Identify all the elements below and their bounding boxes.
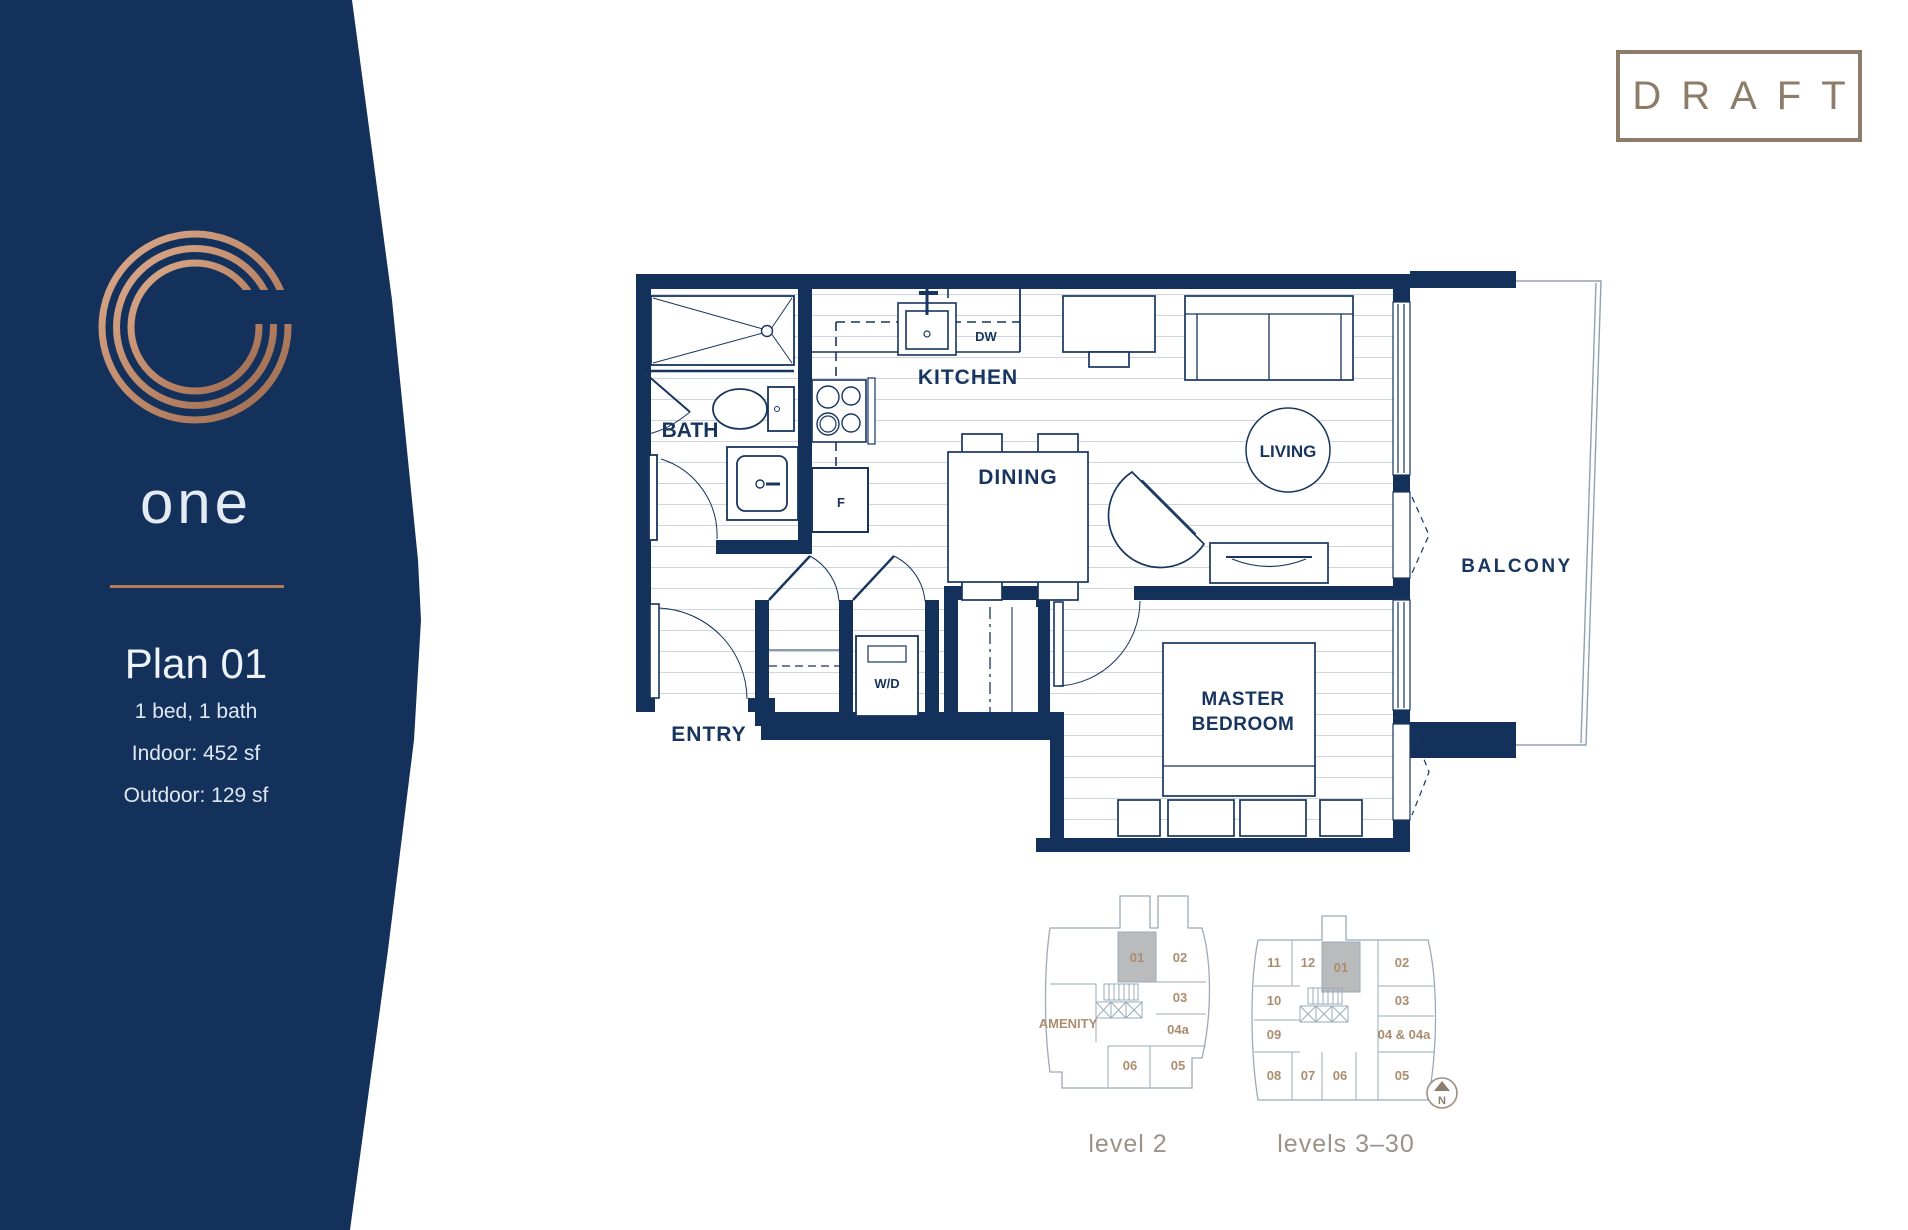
kp3-unit-08: 08 (1267, 1068, 1281, 1083)
kp2-unit-01: 01 (1130, 950, 1144, 965)
room-label-living: LIVING (1260, 442, 1317, 461)
room-label-master-line1: MASTER (1201, 689, 1284, 710)
kp3-unit-03: 03 (1395, 993, 1409, 1008)
room-label-entry: ENTRY (671, 723, 746, 746)
room-label-kitchen: KITCHEN (918, 366, 1018, 389)
room-label-dining: DINING (978, 466, 1058, 489)
keyplan-level2-caption: level 2 (1088, 1130, 1167, 1158)
dishwasher-tag: DW (975, 329, 997, 344)
kp3-unit-04-04a: 04 & 04a (1378, 1027, 1432, 1042)
kp2-unit-06: 06 (1123, 1058, 1137, 1073)
kp3-unit-09: 09 (1267, 1027, 1281, 1042)
keyplan-levels-3-30: 11 12 01 02 10 03 09 04 & 04a 08 07 06 0… (1252, 916, 1436, 1100)
keyplan-levels-3-30-caption: levels 3–30 (1277, 1130, 1414, 1158)
keyplan-level2: 01 02 03 04a 05 06 AMENITY (1039, 896, 1210, 1088)
kp3-unit-11: 11 (1267, 955, 1281, 970)
washer-dryer-tag: W/D (874, 676, 899, 691)
kp3-unit-02: 02 (1395, 955, 1409, 970)
kp2-amenity-label: AMENITY (1039, 1016, 1098, 1031)
balcony-outline (1410, 281, 1601, 745)
fridge-tag: F (837, 495, 845, 510)
room-label-master-line2: BEDROOM (1192, 714, 1295, 735)
floorplan-drawing: BATH KITCHEN DINING LIVING ENTRY MASTER … (0, 0, 1908, 1230)
kp3-unit-10: 10 (1267, 993, 1281, 1008)
north-arrow-label: N (1438, 1095, 1446, 1107)
dining-furniture (948, 434, 1088, 600)
kp2-unit-04a: 04a (1167, 1022, 1189, 1037)
north-arrow-icon: N (1427, 1078, 1457, 1108)
room-label-balcony: BALCONY (1461, 556, 1572, 577)
kp3-unit-01: 01 (1334, 960, 1348, 975)
room-label-bath: BATH (662, 419, 719, 442)
kp3-unit-06: 06 (1333, 1068, 1347, 1083)
floorplan-page: { "sidebar": { "logo_letter": "G", "bran… (0, 0, 1908, 1230)
kp2-unit-03: 03 (1173, 990, 1187, 1005)
kp3-unit-07: 07 (1301, 1068, 1315, 1083)
kp2-unit-02: 02 (1173, 950, 1187, 965)
kp3-unit-12: 12 (1301, 955, 1315, 970)
kp2-unit-05: 05 (1171, 1058, 1185, 1073)
kp3-unit-05: 05 (1395, 1068, 1409, 1083)
